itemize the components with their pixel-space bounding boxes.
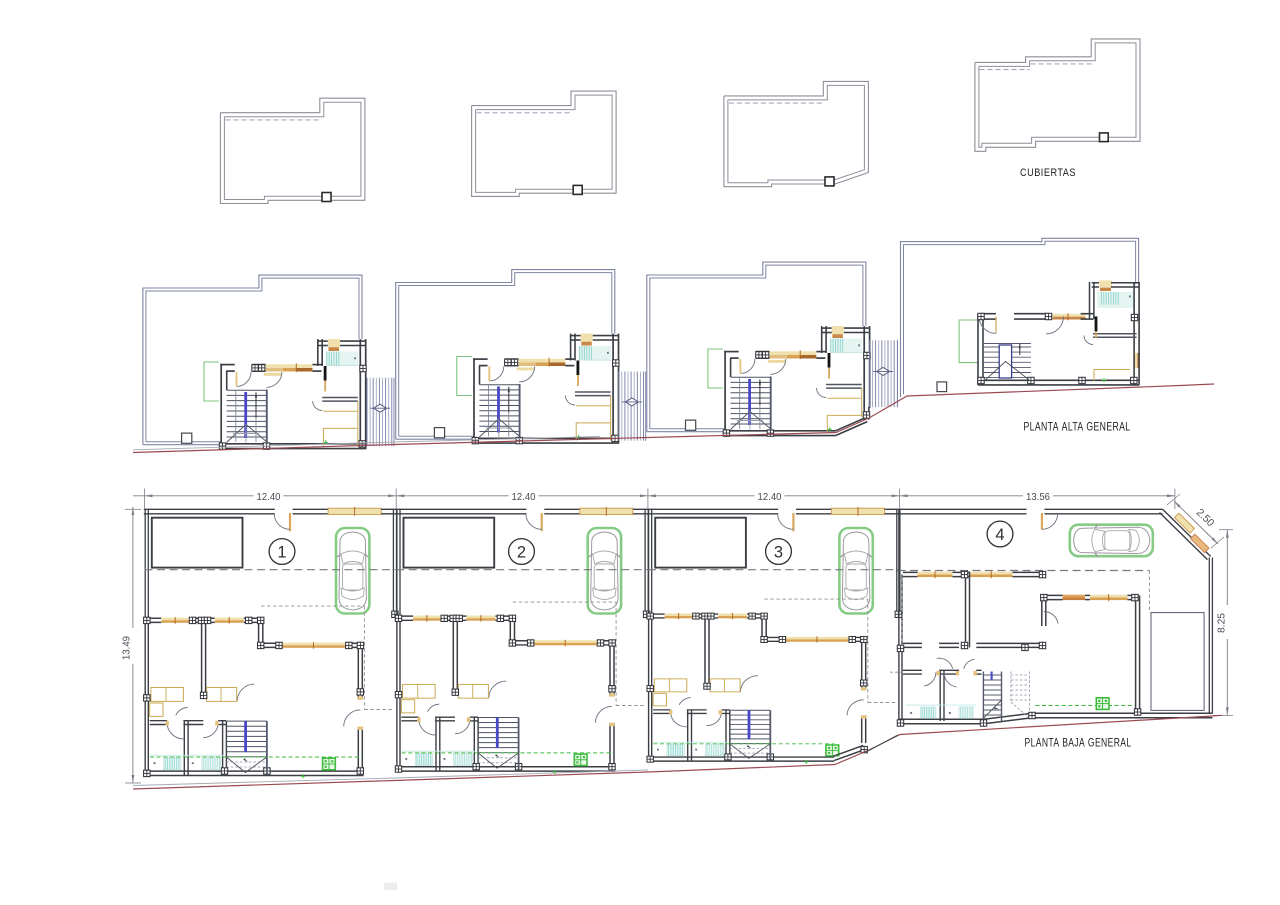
- svg-text:13.56: 13.56: [1026, 491, 1050, 503]
- svg-text:12.40: 12.40: [512, 491, 536, 503]
- svg-text:8.25: 8.25: [1215, 613, 1227, 633]
- svg-text:4: 4: [995, 526, 1004, 544]
- svg-text:PLANTA ALTA GENERAL: PLANTA ALTA GENERAL: [1024, 422, 1131, 434]
- svg-text:CUBIERTAS: CUBIERTAS: [1020, 167, 1076, 179]
- svg-text:12.40: 12.40: [257, 491, 281, 503]
- svg-text:1: 1: [277, 543, 286, 561]
- svg-text:12.40: 12.40: [758, 491, 782, 503]
- svg-text:PLANTA BAJA GENERAL: PLANTA BAJA GENERAL: [1025, 738, 1132, 750]
- svg-text:2: 2: [517, 543, 526, 561]
- svg-text:3: 3: [774, 543, 783, 561]
- svg-text:13.49: 13.49: [121, 636, 133, 660]
